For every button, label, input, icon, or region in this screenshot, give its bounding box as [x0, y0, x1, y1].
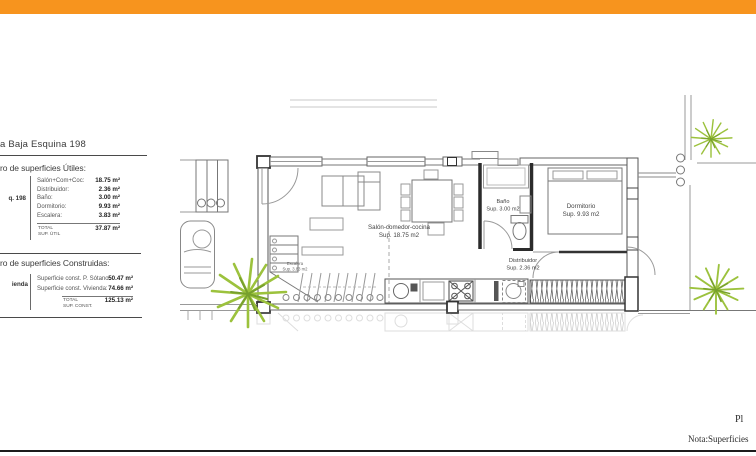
- window: [627, 188, 638, 199]
- car: [181, 221, 215, 288]
- page: a Baja Esquina 198 ro de superficies Úti…: [0, 0, 756, 456]
- plant: [212, 259, 286, 327]
- plant: [690, 265, 743, 314]
- mirrored-unit: [257, 313, 643, 331]
- tv-unit: [302, 247, 343, 255]
- footer-clipped-text: Pl: [735, 414, 743, 425]
- bano-label: Baño: [496, 199, 509, 205]
- kitchen-counter: [385, 279, 528, 303]
- left-wall: [258, 168, 298, 302]
- sofa: [322, 172, 380, 210]
- escalera-label: Escalera: [287, 261, 304, 266]
- balusters: [283, 295, 383, 301]
- dormitorio-area: Sup. 9.93 m2: [563, 211, 600, 218]
- oven: [423, 282, 444, 300]
- floor-plan: Salón-comedor-cocina Sup. 18.75 m2 Baño …: [0, 0, 756, 456]
- coffee-table: [310, 218, 343, 230]
- storage-unit: [180, 160, 228, 212]
- terrace-slats: [530, 280, 625, 303]
- washbasin: [520, 196, 531, 213]
- bedroom: [533, 158, 638, 278]
- toilet: [511, 216, 528, 240]
- bathroom-door: [484, 221, 512, 249]
- roof-lines: [290, 100, 437, 107]
- hob: [449, 281, 473, 301]
- shower-tray: [484, 165, 529, 188]
- dormitorio-label: Dormitorio: [567, 203, 596, 210]
- footer-note: Nota:Superficies: [688, 434, 748, 444]
- salon-label: Salón-comedor-cocina: [368, 224, 430, 231]
- faucet: [411, 284, 418, 292]
- sink: [394, 284, 409, 299]
- bed: [548, 168, 622, 234]
- distribuidor-label: Distribuidor: [509, 258, 537, 264]
- distribuidor-area: Sup. 2.36 m2: [506, 266, 539, 272]
- fridge-handle: [494, 281, 499, 301]
- plant: [691, 120, 732, 157]
- top-wall: [257, 152, 627, 169]
- salon-area: Sup. 18.75 m2: [379, 232, 420, 239]
- escalera-area: Sup. 3.83 m2: [283, 267, 309, 272]
- bottom-rule: [0, 450, 756, 452]
- bano-area: Sup. 3.00 m2: [486, 207, 519, 213]
- column: [625, 277, 638, 311]
- washing-machine: [503, 281, 526, 303]
